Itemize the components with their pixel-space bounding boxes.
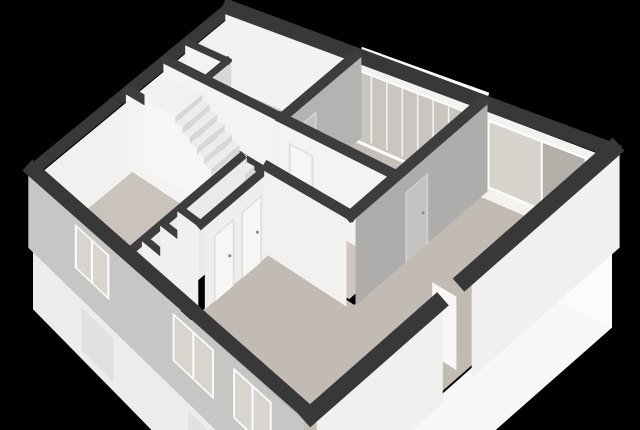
floorplan-3d-view[interactable] xyxy=(0,0,640,430)
door-closet-b-handle-icon xyxy=(256,231,259,234)
door-living-room-handle-icon xyxy=(422,211,425,214)
door-closet-a-handle-icon xyxy=(228,254,231,257)
floorplan-scene xyxy=(28,8,619,430)
